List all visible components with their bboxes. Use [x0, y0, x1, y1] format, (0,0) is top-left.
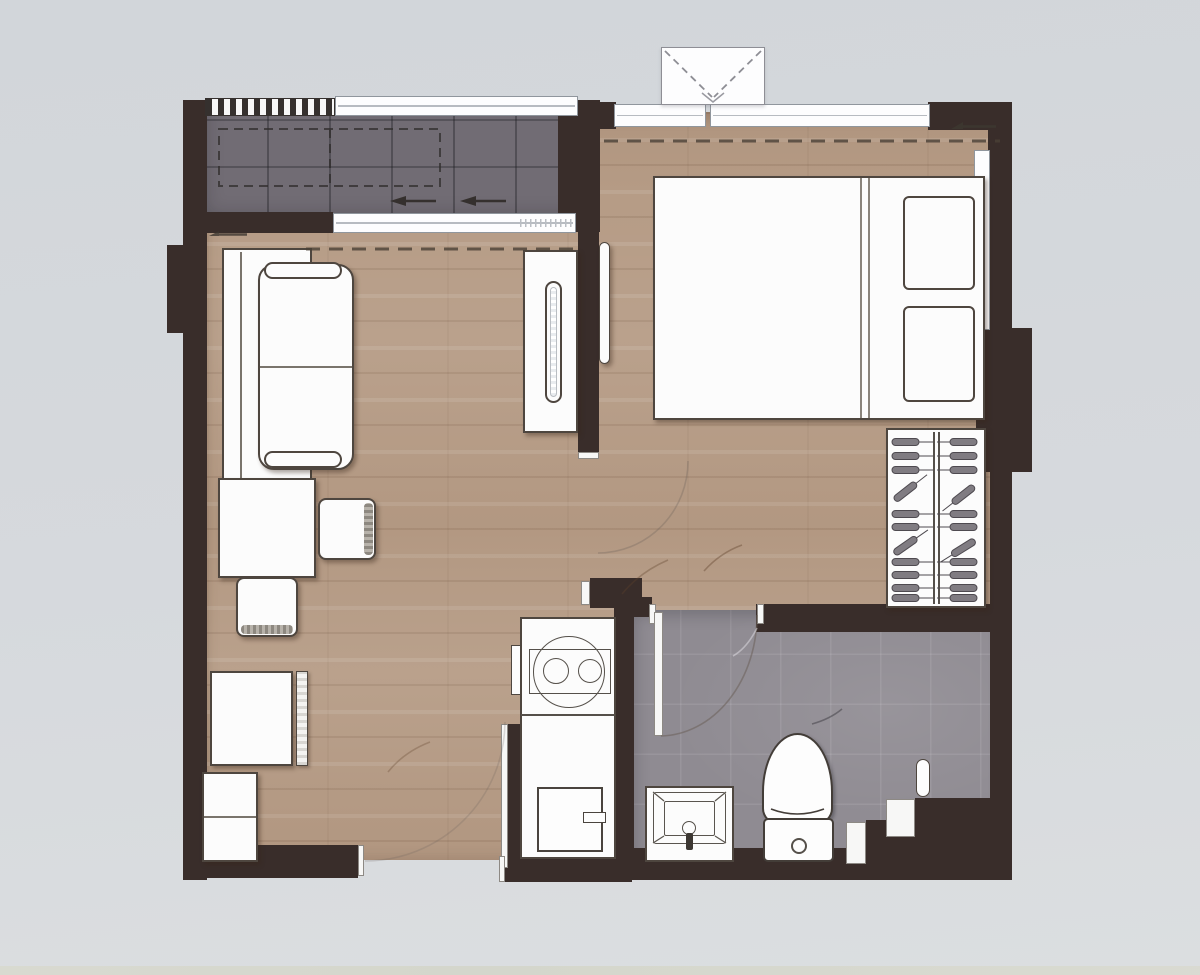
wardrobe-rail-2	[938, 432, 940, 604]
balcony-railing	[205, 98, 335, 116]
bedroom-window-right	[710, 104, 930, 127]
tall-cabinet-divider	[204, 816, 256, 818]
kitchen-tap	[583, 812, 606, 823]
bath-door-jamb-right	[757, 604, 764, 624]
burner-2	[578, 659, 602, 683]
bedroom-window-left	[614, 104, 706, 127]
shower-head	[916, 759, 930, 797]
tv-bedroom	[599, 242, 610, 364]
wall-south-kitchen	[505, 856, 632, 882]
balcony-sliding-door	[333, 213, 576, 233]
low-cabinet-panel	[296, 671, 308, 766]
dining-chair-east	[318, 498, 376, 560]
tv-living	[545, 281, 562, 403]
sofa-cushion-divider	[260, 366, 352, 368]
sofa-armrest-bottom	[264, 451, 342, 468]
toilet-flush-button	[791, 838, 807, 854]
entrance-jamb-right	[499, 856, 505, 882]
wardrobe-rail-1	[933, 432, 935, 604]
wall-west	[183, 100, 207, 880]
vanity-faucet-stem	[686, 833, 693, 850]
wall-partition-living-bedroom	[578, 230, 599, 458]
bath-door-leaf	[654, 612, 663, 736]
floor-plan	[0, 0, 1200, 975]
wall-bath-north-right	[756, 604, 1012, 632]
wall-east-lower	[990, 464, 1012, 816]
ac-condenser	[661, 47, 765, 105]
wall-bath-west	[614, 597, 634, 878]
counter-side-tab	[511, 645, 521, 695]
wall-west-pier	[167, 245, 183, 333]
counter-divider	[521, 714, 615, 716]
balcony-glass-band	[335, 96, 578, 116]
dining-table	[218, 478, 316, 578]
wall-under-balcony	[205, 212, 333, 233]
partition-end-cap	[578, 452, 599, 459]
bath-slot	[846, 822, 866, 864]
bed-fold-line-1	[860, 178, 862, 418]
scan-edge-artifact	[0, 966, 1200, 975]
burner-1	[543, 658, 569, 684]
wardrobe	[886, 428, 986, 608]
sofa-back-line	[240, 252, 242, 479]
entry-stub-cap	[501, 724, 508, 868]
pillow-2	[903, 306, 975, 402]
balcony-floor	[205, 100, 578, 215]
entrance-jamb-left	[358, 845, 364, 876]
wall-east-upper	[988, 102, 1012, 332]
bed-fold-line-2	[868, 178, 870, 418]
dining-chair-south	[236, 577, 298, 637]
kitchen-stub-cap	[581, 581, 590, 605]
sofa-armrest-top	[264, 262, 342, 279]
bath-niche	[886, 799, 915, 837]
low-cabinet	[210, 671, 293, 766]
wall-north-left	[578, 102, 616, 129]
pillow-1	[903, 196, 975, 290]
wall-corner-shaft	[915, 798, 1012, 880]
